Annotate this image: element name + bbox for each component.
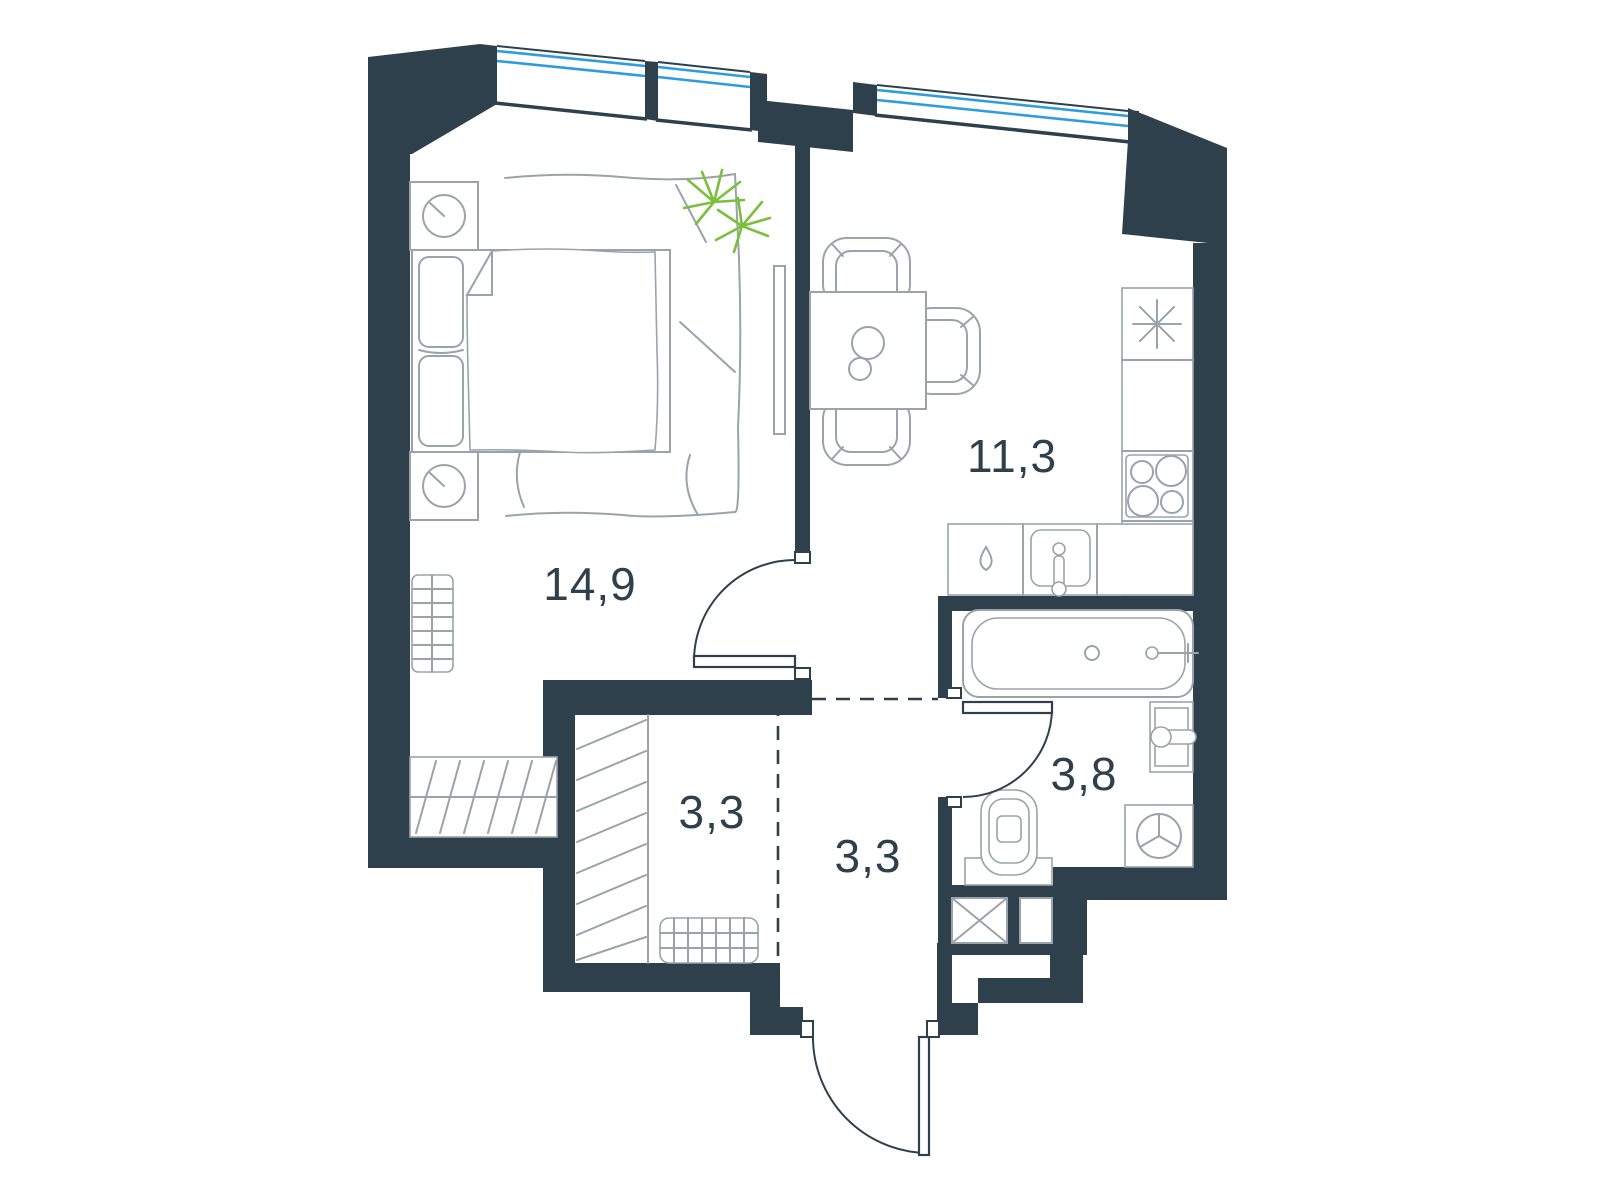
shaft-cross-icon [952,898,1007,943]
bathtub [963,610,1198,697]
window-icon [495,46,647,119]
floor-plan: 14,9 11,3 3,3 3,3 3,8 [0,0,1600,1200]
window-icon [656,62,752,130]
stove-icon [1126,455,1188,517]
washing-machine-icon [1125,805,1193,867]
tv [774,266,785,434]
hallway-area-label: 3,3 [835,830,902,882]
nightstand [410,452,478,520]
kitchen-furniture [810,238,1193,596]
toilet [965,790,1052,885]
table-decor [849,358,871,380]
window-icon [875,85,1130,142]
bedroom-area-label: 14,9 [543,558,637,610]
bathroom-area-label: 3,8 [1051,748,1118,800]
clothes-rail-hatch [577,715,648,963]
sink-icon [1031,530,1090,596]
fridge-snowflake-icon [1133,300,1181,348]
floor-mat [410,757,557,837]
entrance-door [801,1021,939,1155]
bedroom-furniture [410,170,785,837]
nightstand [410,182,478,250]
washbasin [1150,702,1196,772]
pillow [419,356,463,446]
shaft [1020,898,1052,943]
table-decor [852,327,884,359]
duvet [467,249,658,453]
floor-plan-svg: 14,9 11,3 3,3 3,3 3,8 [0,0,1600,1200]
bedroom-door [694,552,810,679]
radiator [412,575,453,672]
bathroom-door [947,688,1052,807]
wardrobe-fittings [577,715,758,963]
zone-boundaries [778,699,938,958]
pillow [419,257,463,347]
kitchen-area-label: 11,3 [967,430,1057,482]
wardrobe-area-label: 3,3 [679,786,746,838]
kitchen-sink-counter [948,524,1193,596]
plant-icon [684,170,770,252]
shoe-rack-grid [660,918,758,963]
